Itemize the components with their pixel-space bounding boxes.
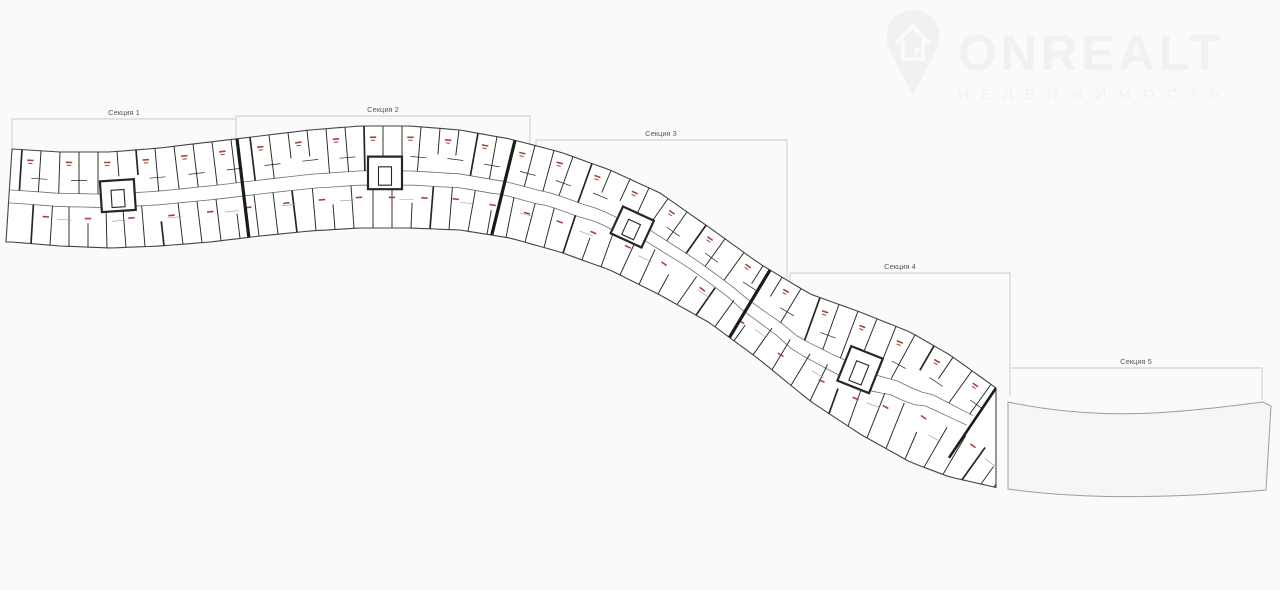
section-5-label: Секция 5 [1120,357,1152,366]
section-2-label: Секция 2 [367,105,399,114]
page-background: ONREALT НЕДВИЖИМОСТЬ Секция 1 Секция 2 С… [0,0,1280,590]
floor-plan: Секция 1 Секция 2 Секция 3 Секция 4 Секц… [0,0,1280,590]
section-3-label: Секция 3 [645,129,677,138]
plan-geometry [6,116,1271,497]
section-1-label: Секция 1 [108,108,140,117]
section-4-label: Секция 4 [884,262,916,271]
